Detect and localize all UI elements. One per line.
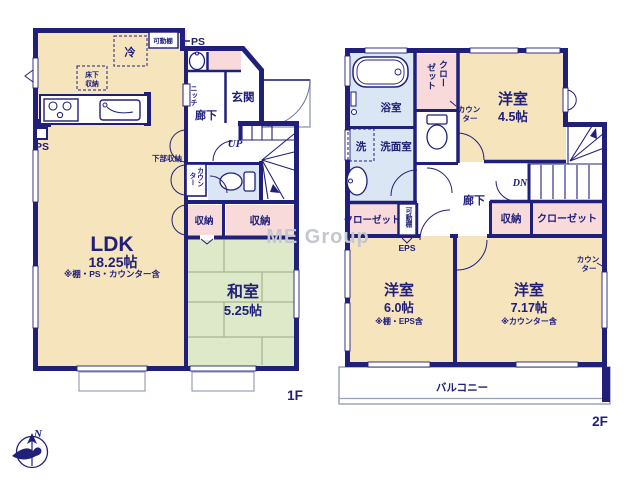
ldk-note: ※棚・PS・カウンター含 bbox=[64, 269, 161, 279]
floorplan-canvas: LDK 18.25帖 ※棚・PS・カウンター含 和室 5.25帖 玄関 廊下 U… bbox=[0, 0, 640, 480]
yoshitsu717-size: 7.17帖 bbox=[511, 300, 548, 315]
yoshitsu717-note: ※カウンター含 bbox=[501, 316, 558, 326]
yoshitsu45-size: 4.5帖 bbox=[498, 109, 528, 124]
ps-box-left bbox=[36, 128, 47, 139]
vent-mark bbox=[25, 70, 33, 82]
north-label: N bbox=[33, 428, 43, 440]
up-label: UP bbox=[228, 138, 243, 150]
floor-label-1f: 1F bbox=[287, 388, 303, 403]
yoshitsu45-name: 洋室 bbox=[498, 90, 528, 108]
genkan-label: 玄関 bbox=[232, 90, 255, 104]
floor-1f: LDK 18.25帖 ※棚・PS・カウンター含 和室 5.25帖 玄関 廊下 U… bbox=[25, 30, 310, 403]
stove-icon bbox=[44, 99, 78, 121]
balcony-label: バルコニー bbox=[436, 382, 488, 394]
underfloor-label-2: 収納 bbox=[85, 79, 99, 88]
shower-fixture bbox=[351, 92, 357, 115]
senmen-label: 洗面室 bbox=[380, 140, 412, 153]
kitchen-counter bbox=[40, 95, 148, 124]
room-ldk bbox=[35, 30, 187, 367]
bath-label: 浴室 bbox=[381, 101, 402, 114]
ldk-name: LDK bbox=[90, 233, 133, 256]
floor-label-2f: 2F bbox=[592, 414, 608, 429]
closet-right-label: クローゼット bbox=[537, 212, 597, 225]
ps-top-label: PS bbox=[191, 36, 205, 48]
compass: N bbox=[12, 428, 48, 468]
ldk-size: 18.25帖 bbox=[88, 254, 137, 270]
yoshitsu60-size: 6.0帖 bbox=[384, 300, 414, 315]
shuno-2f-label: 収納 bbox=[501, 212, 522, 225]
rouka-label-2f: 廊下 bbox=[463, 193, 485, 207]
counter-c-label-2: ター bbox=[582, 263, 597, 273]
yoshitsu60-name: 洋室 bbox=[384, 281, 414, 299]
entrance-porch bbox=[262, 80, 310, 127]
shuno1-label: 収納 bbox=[194, 215, 213, 227]
yoshitsu717-name: 洋室 bbox=[514, 281, 544, 299]
terrace-right bbox=[192, 372, 254, 391]
lower-storage-label: 下部収納 bbox=[152, 153, 182, 163]
counter-a-label-1: カウン bbox=[458, 105, 481, 114]
counter-c-label-1: カウン bbox=[577, 255, 600, 264]
eps-label: EPS bbox=[398, 243, 415, 253]
washbasin-icon-1f bbox=[190, 52, 205, 70]
toilet-icon-2f bbox=[427, 115, 447, 149]
rouka-label-1f: 廊下 bbox=[195, 108, 217, 122]
washitsu-size: 5.25帖 bbox=[224, 303, 262, 318]
sink-icon bbox=[100, 100, 140, 120]
washitsu-door-gap bbox=[200, 235, 214, 240]
closet-top-label-1: クロー bbox=[438, 60, 448, 87]
closet-left-label: クローゼット bbox=[343, 214, 400, 226]
dn-label: DN bbox=[512, 178, 528, 189]
fridge-label: 冷 bbox=[125, 45, 136, 59]
washer-label: 洗 bbox=[356, 140, 367, 153]
ps-left-label: PS bbox=[35, 141, 49, 153]
niche-box bbox=[183, 84, 190, 106]
entry-door-arc bbox=[262, 80, 310, 127]
terrace-left bbox=[79, 372, 145, 391]
watermark: ME Group bbox=[266, 226, 370, 248]
bathtub-icon bbox=[353, 57, 408, 87]
closet-top-label-2: ゼット bbox=[426, 62, 436, 90]
room-closet-top bbox=[417, 54, 457, 109]
yoshitsu60-note: ※棚・EPS含 bbox=[375, 316, 424, 326]
shoe-cabinet bbox=[209, 51, 241, 71]
room-yoshitsu-60 bbox=[348, 236, 454, 363]
niche-label: ニッチ bbox=[190, 85, 198, 106]
washbasin-icon-2f bbox=[347, 167, 367, 195]
awning-window-mark bbox=[568, 90, 576, 110]
movable-shelf-label-1f: 可動棚 bbox=[153, 36, 173, 45]
underfloor-label-1: 床下 bbox=[85, 70, 99, 79]
floor-2f: 浴室 洗面室 洗 クロー ゼット カウン ター 洋室 4.5帖 廊下 DN クロ… bbox=[339, 48, 610, 429]
counter-a-label-2: ター bbox=[463, 113, 478, 123]
washitsu-name: 和室 bbox=[227, 282, 259, 301]
